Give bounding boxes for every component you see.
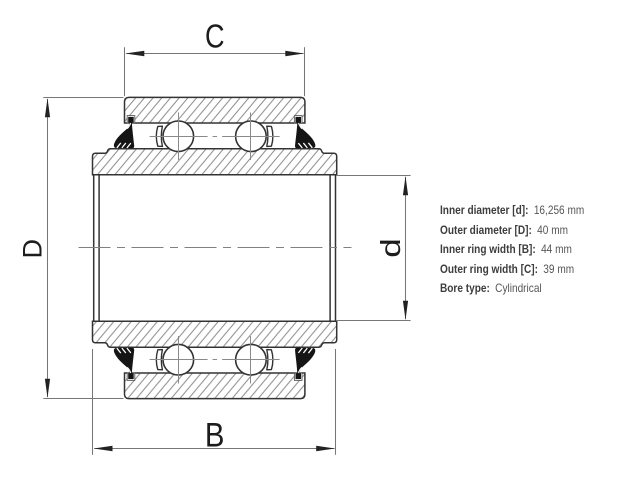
svg-text:C: C xyxy=(205,19,225,55)
svg-text:B: B xyxy=(205,415,225,454)
svg-text:d: d xyxy=(374,238,406,257)
svg-text:D: D xyxy=(17,239,47,258)
